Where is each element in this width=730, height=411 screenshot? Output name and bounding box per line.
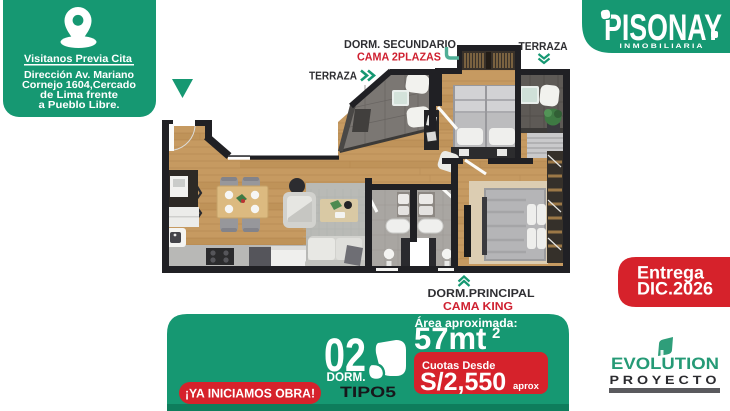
svg-text:DORM.PRINCIPAL: DORM.PRINCIPAL — [428, 288, 535, 300]
svg-text:aprox: aprox — [513, 381, 540, 392]
svg-text:I N M O B I L I A R I A: I N M O B I L I A R I A — [620, 43, 703, 50]
svg-text:TERRAZA: TERRAZA — [309, 71, 357, 83]
svg-text:PISONAY: PISONAY — [604, 7, 722, 48]
svg-text:S/2,550: S/2,550 — [420, 368, 506, 396]
svg-text:DORM.: DORM. — [327, 370, 366, 384]
svg-text:TERRAZA: TERRAZA — [519, 41, 568, 53]
svg-text:DIC.2026: DIC.2026 — [637, 279, 713, 299]
svg-text:DORM. SECUNDARIO: DORM. SECUNDARIO — [344, 39, 456, 51]
svg-text:CAMA KING: CAMA KING — [443, 301, 513, 313]
svg-text:¡YA INICIAMOS OBRA!: ¡YA INICIAMOS OBRA! — [185, 387, 315, 401]
svg-text:P R O Y E C T O: P R O Y E C T O — [610, 373, 717, 387]
svg-text:EVOLUTION: EVOLUTION — [611, 355, 719, 373]
svg-text:2: 2 — [492, 325, 500, 342]
svg-text:57mt: 57mt — [414, 321, 486, 356]
svg-text:TIPO5: TIPO5 — [340, 384, 396, 401]
svg-text:Visitanos Previa Cita: Visitanos Previa Cita — [24, 53, 132, 65]
svg-text:a Pueblo Libre.: a Pueblo Libre. — [39, 100, 120, 111]
svg-text:CAMA 2PLAZAS: CAMA 2PLAZAS — [357, 52, 441, 64]
